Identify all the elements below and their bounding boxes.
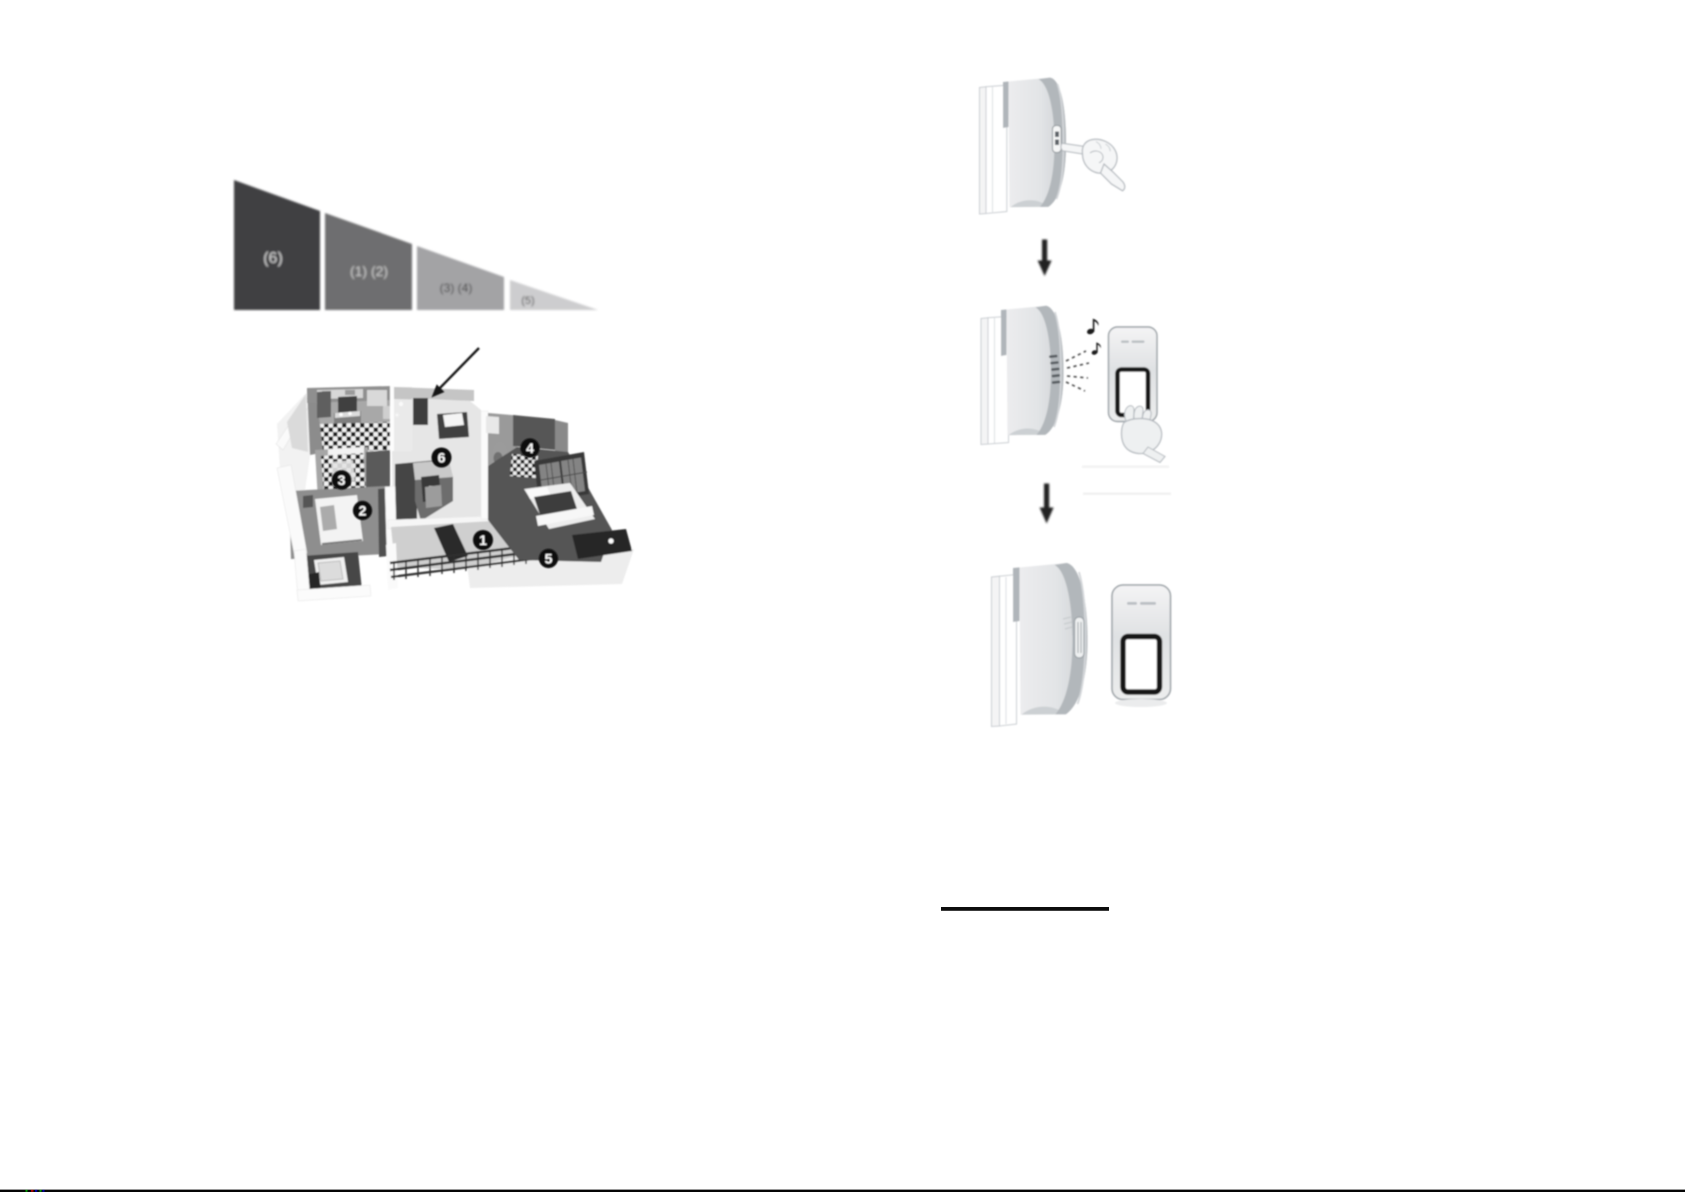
svg-text:6: 6 <box>438 450 446 466</box>
svg-text:2: 2 <box>359 503 367 519</box>
svg-text:(5): (5) <box>521 295 534 307</box>
svg-text:(3) (4): (3) (4) <box>440 281 473 295</box>
svg-text:(1) (2): (1) (2) <box>350 263 388 279</box>
svg-text:(6): (6) <box>263 250 283 267</box>
svg-text:3: 3 <box>338 472 346 488</box>
svg-text:4: 4 <box>526 440 534 456</box>
svg-text:1: 1 <box>479 532 487 548</box>
svg-text:5: 5 <box>545 551 553 567</box>
